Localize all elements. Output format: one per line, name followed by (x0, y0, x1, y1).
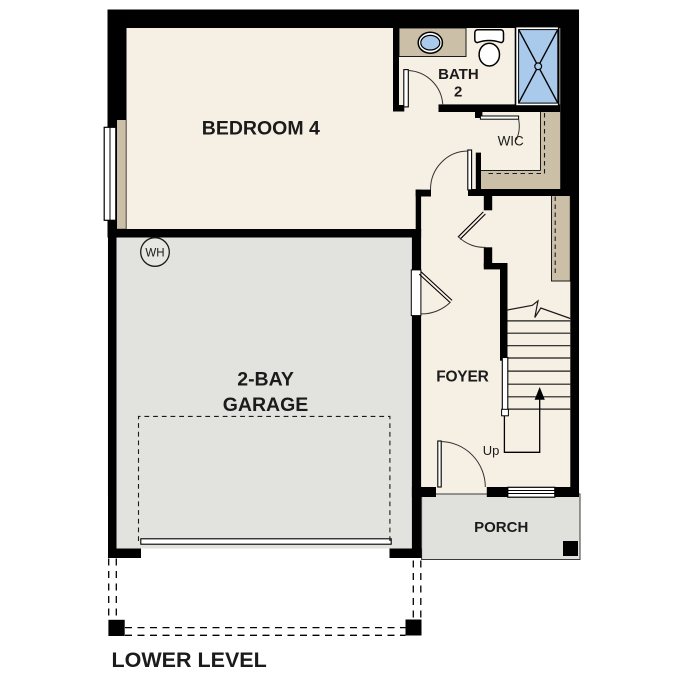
svg-text:FOYER: FOYER (436, 368, 488, 385)
svg-text:2-BAY: 2-BAY (237, 369, 294, 391)
svg-text:PORCH: PORCH (474, 519, 528, 536)
svg-text:Up: Up (483, 443, 500, 458)
svg-text:GARAGE: GARAGE (223, 394, 309, 416)
svg-text:WH: WH (145, 247, 164, 259)
svg-text:WIC: WIC (498, 133, 524, 148)
svg-text:LOWER LEVEL: LOWER LEVEL (112, 648, 267, 672)
svg-text:BATH: BATH (438, 66, 479, 83)
svg-text:BEDROOM 4: BEDROOM 4 (202, 118, 320, 140)
svg-text:2: 2 (454, 84, 462, 101)
